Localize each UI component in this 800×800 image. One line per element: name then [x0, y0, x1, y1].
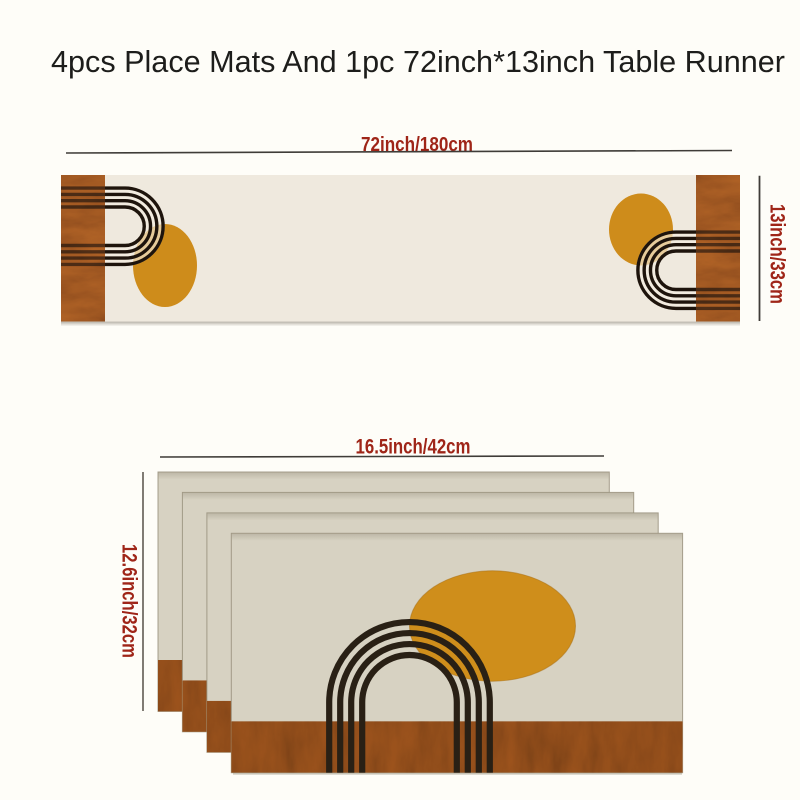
- svg-text:13inch/33cm: 13inch/33cm: [766, 204, 789, 304]
- svg-text:72inch/180cm: 72inch/180cm: [361, 134, 473, 156]
- svg-text:16.5inch/42cm: 16.5inch/42cm: [356, 436, 471, 459]
- svg-text:4pcs Place Mats And 1pc 72inch: 4pcs Place Mats And 1pc 72inch*13inch Ta…: [51, 44, 785, 79]
- svg-text:12.6inch/32cm: 12.6inch/32cm: [118, 544, 141, 658]
